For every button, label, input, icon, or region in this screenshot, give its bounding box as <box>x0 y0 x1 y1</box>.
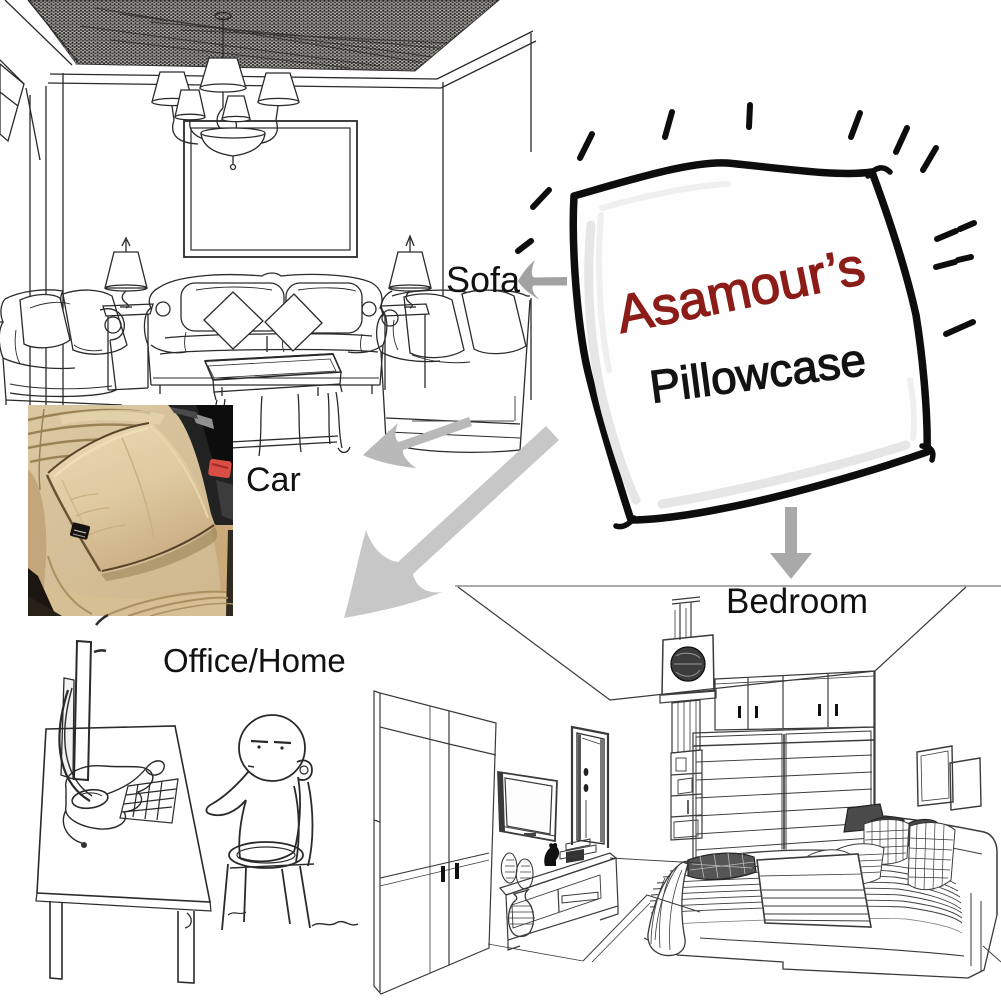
svg-text:Office/Home: Office/Home <box>163 642 346 679</box>
svg-text:Car: Car <box>246 461 301 499</box>
svg-text:Bedroom: Bedroom <box>726 582 868 621</box>
svg-text:Sofa: Sofa <box>446 259 521 300</box>
